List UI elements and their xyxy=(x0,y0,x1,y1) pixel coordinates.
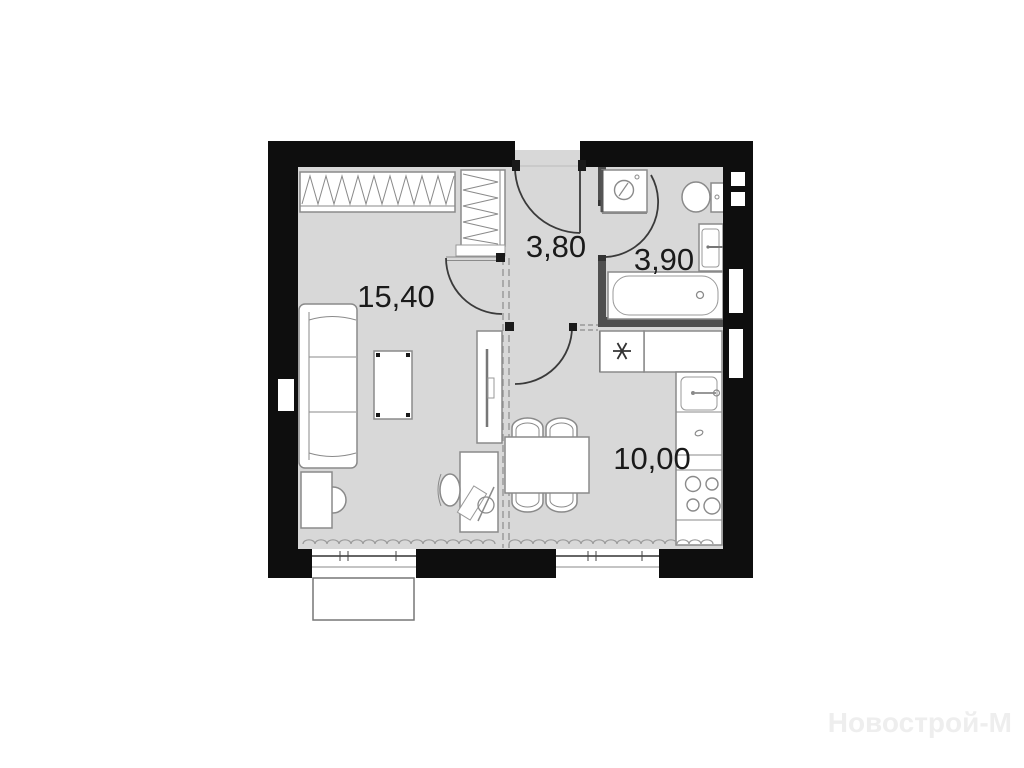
dining-table xyxy=(505,437,589,493)
hallway-area-label: 3,80 xyxy=(526,229,586,264)
floor-plan-drawing: 15,40 3,80 3,90 10,00 Новострой-М xyxy=(0,0,1024,768)
kitchen-sink xyxy=(681,377,720,410)
washing-machine xyxy=(602,170,647,212)
refrigerator xyxy=(600,331,644,372)
developer-watermark: Новострой-М xyxy=(828,707,1012,738)
bathtub xyxy=(608,272,723,319)
window-left xyxy=(312,549,416,578)
wardrobe-hanging-rail xyxy=(300,172,455,212)
kitchen-area-label: 10,00 xyxy=(613,441,691,476)
tv-stand xyxy=(477,331,502,443)
coffee-table xyxy=(374,351,412,419)
window-right xyxy=(556,549,659,578)
floor-plan-page: 15,40 3,80 3,90 10,00 Новострой-М xyxy=(0,0,1024,768)
balcony xyxy=(313,578,414,620)
desk xyxy=(457,452,498,532)
kitchen-counter-top xyxy=(644,331,722,372)
toilet xyxy=(682,182,724,212)
hall-closet xyxy=(456,170,505,256)
living-room-area-label: 15,40 xyxy=(357,279,435,314)
bathroom-area-label: 3,90 xyxy=(634,242,694,277)
sofa xyxy=(299,304,357,468)
bathroom-sink xyxy=(699,224,723,271)
